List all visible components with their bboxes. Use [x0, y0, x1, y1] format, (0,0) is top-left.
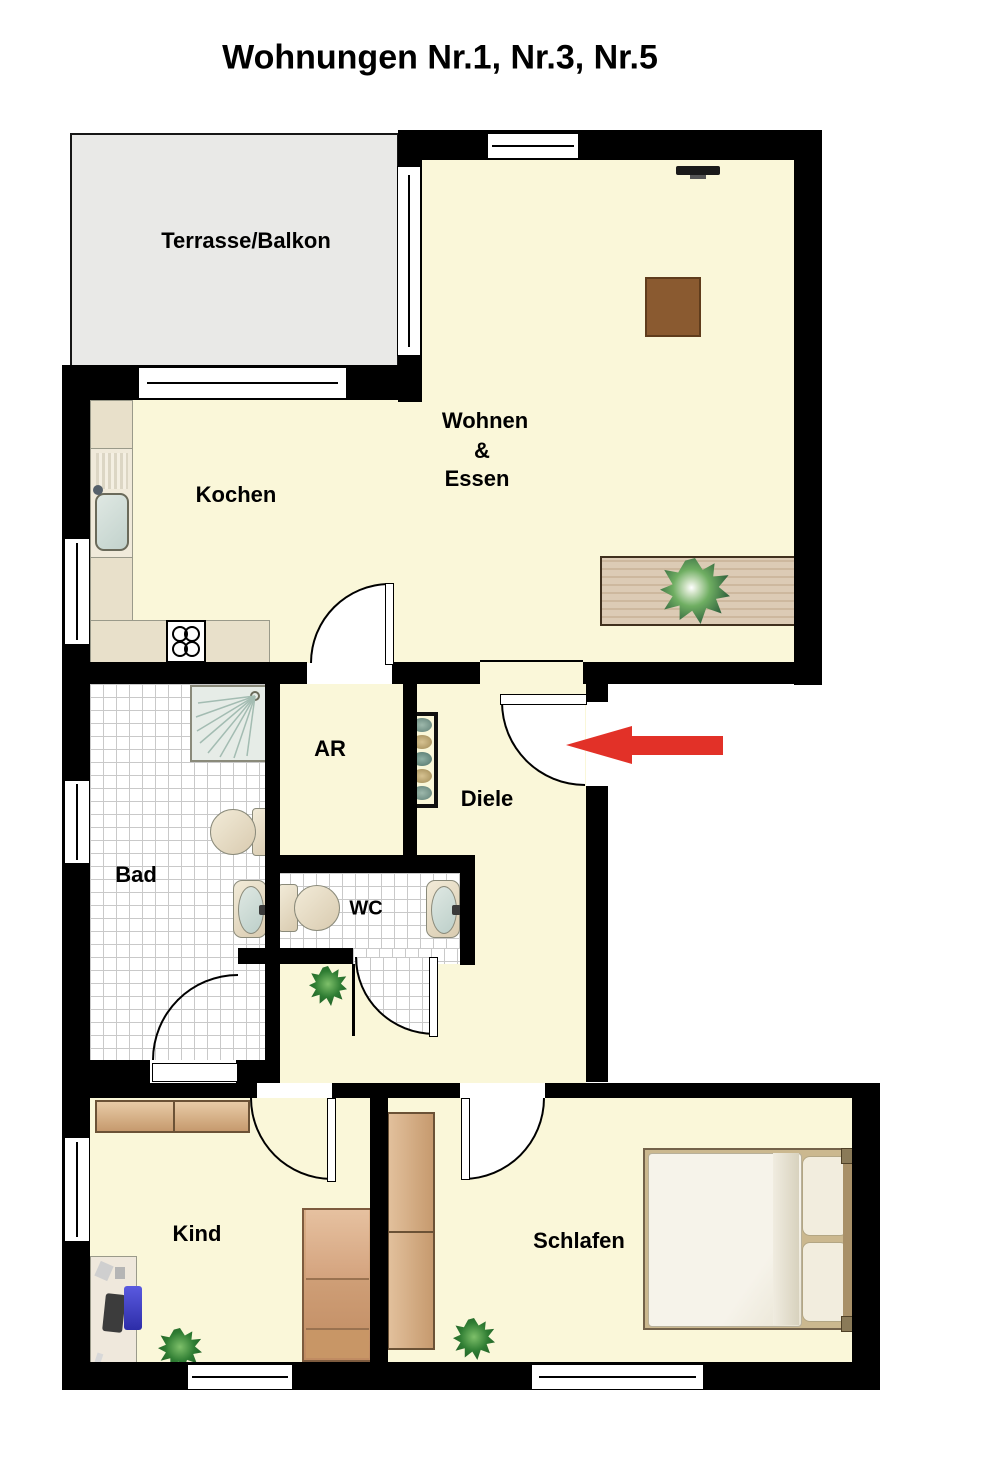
- room-label-kitchen: Kochen: [196, 482, 277, 508]
- wall-wc-south: [238, 948, 353, 964]
- tv-icon: [676, 166, 720, 175]
- side-table: [645, 277, 701, 337]
- desk-chair: [102, 1293, 126, 1333]
- floor-plan: Wohnungen Nr.1, Nr.3, Nr.5: [0, 0, 1000, 1466]
- wall-north: [398, 130, 822, 160]
- wall-mid-east: [583, 662, 822, 684]
- storage-door-leaf: [385, 583, 394, 665]
- sink-basin: [95, 493, 129, 551]
- room-label-living-2: &: [474, 438, 490, 464]
- bath-toilet-icon: [210, 806, 272, 858]
- page-title: Wohnungen Nr.1, Nr.3, Nr.5: [222, 39, 658, 78]
- wall-bath-south-left: [62, 1060, 150, 1083]
- room-label-hall: Diele: [461, 786, 514, 812]
- wall-hall-east-upper: [586, 684, 608, 702]
- wall-child-north-left: [62, 1083, 257, 1098]
- bedroom-wardrobe: [387, 1112, 435, 1350]
- room-label-bedroom: Schlafen: [533, 1228, 625, 1254]
- room-label-child: Kind: [173, 1221, 222, 1247]
- room-label-living-3: Essen: [445, 466, 510, 492]
- entrance-arrow-icon: [566, 726, 632, 764]
- window-terrace-east: [397, 166, 421, 356]
- wall-wc-north: [265, 855, 475, 873]
- wall-child-north-right: [332, 1083, 460, 1098]
- tv-stand: [690, 175, 706, 179]
- sink-unit: [90, 448, 133, 558]
- wall-east-living: [794, 130, 822, 685]
- bed-duvet-fold: [773, 1153, 799, 1325]
- wall-hall-east-lower: [586, 786, 608, 1082]
- bed-pillow: [802, 1156, 848, 1236]
- wall-bedroom-north: [545, 1083, 880, 1098]
- bath-sink-icon: [233, 880, 267, 938]
- room-label-storage: AR: [314, 736, 346, 762]
- sink-tap: [93, 485, 103, 495]
- child-bed: [302, 1208, 373, 1362]
- bath-door-leaf: [152, 1063, 238, 1082]
- wall-east-bedroom: [852, 1083, 880, 1390]
- room-label-living-1: Wohnen: [442, 408, 528, 434]
- window-child-west: [64, 1137, 90, 1242]
- stove-icon: [166, 620, 206, 663]
- shower-icon: [190, 685, 267, 762]
- window-terrace-door: [138, 367, 347, 399]
- passage-threshold-line: [480, 660, 583, 662]
- bedroom-door-leaf: [461, 1098, 470, 1180]
- double-bed: [643, 1148, 855, 1330]
- child-door-leaf: [327, 1098, 336, 1182]
- sink-drainer: [96, 453, 128, 489]
- room-label-wc: WC: [349, 898, 382, 921]
- room-label-bath: Bad: [115, 862, 157, 888]
- entrance-door-leaf: [500, 694, 587, 705]
- wc-sink-icon: [426, 880, 460, 938]
- window-living-north: [487, 133, 579, 159]
- wall-child-bedroom-divider: [370, 1098, 388, 1362]
- wall-bath-south-right: [236, 1060, 280, 1083]
- desk-monitor: [124, 1286, 142, 1330]
- wall-wc-east: [460, 855, 475, 965]
- window-bedroom-south: [531, 1364, 704, 1390]
- window-kitchen-west: [64, 538, 90, 645]
- wall-vestibule-frame: [352, 964, 355, 1036]
- window-child-south: [187, 1364, 293, 1390]
- wc-toilet-icon: [278, 882, 336, 934]
- coat-rack-icon: [414, 712, 438, 808]
- storage-room-floor: [280, 684, 403, 855]
- child-wardrobe: [95, 1100, 250, 1133]
- room-label-terrace: Terrasse/Balkon: [161, 228, 331, 254]
- bed-pillow: [802, 1242, 848, 1322]
- window-bath-west: [64, 780, 90, 864]
- wc-door-leaf: [429, 957, 438, 1037]
- entrance-arrow-shaft: [630, 736, 723, 755]
- wall-south: [62, 1362, 880, 1390]
- wall-mid-kitchen: [62, 662, 307, 684]
- passage-threshold: [480, 660, 583, 684]
- wall-storage-east: [403, 680, 417, 858]
